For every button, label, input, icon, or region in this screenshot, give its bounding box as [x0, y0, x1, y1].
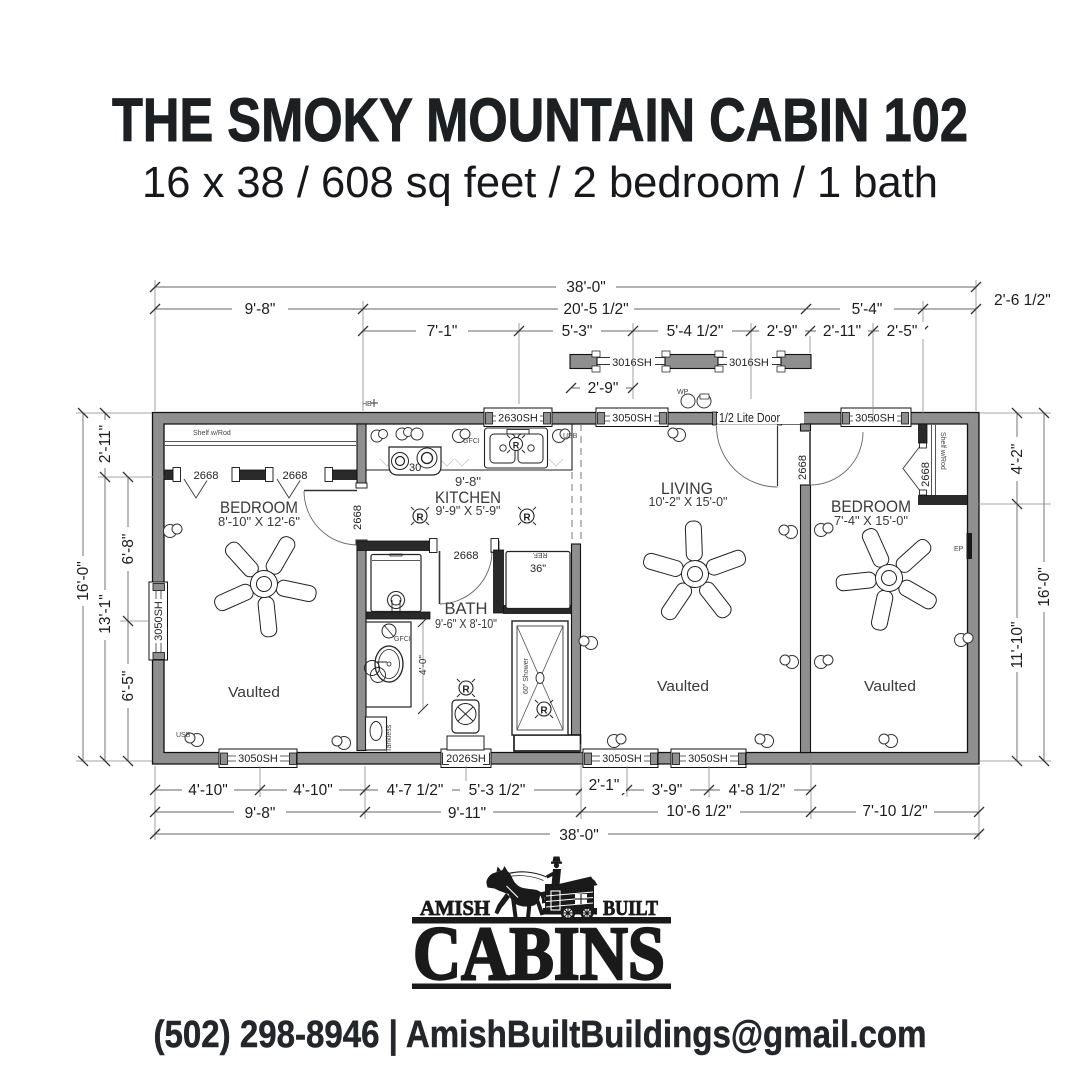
svg-text:CABINS: CABINS [413, 912, 665, 996]
svg-text:7'-10 1/2": 7'-10 1/2" [862, 803, 927, 820]
svg-text:38'-0": 38'-0" [559, 827, 598, 844]
svg-text:1/2 Lite Door: 1/2 Lite Door [719, 411, 780, 425]
svg-text:4'-10": 4'-10" [293, 782, 332, 799]
svg-text:30: 30 [409, 462, 421, 474]
svg-text:2'-9": 2'-9" [767, 323, 798, 340]
svg-text:8'-10" X 12'-6": 8'-10" X 12'-6" [218, 514, 300, 529]
svg-text:THE SMOKY MOUNTAIN CABIN 102: THE SMOKY MOUNTAIN CABIN 102 [112, 86, 968, 154]
svg-text:2668: 2668 [920, 462, 932, 487]
svg-text:2630SH: 2630SH [498, 413, 538, 425]
svg-text:38'-0": 38'-0" [566, 279, 605, 296]
svg-text:R: R [523, 513, 531, 524]
svg-text:10'-6 1/2": 10'-6 1/2" [666, 803, 731, 820]
svg-text:2668: 2668 [797, 455, 809, 480]
svg-text:2'-1": 2'-1" [589, 777, 620, 794]
svg-text:36": 36" [530, 563, 546, 575]
svg-text:9'-8": 9'-8" [245, 805, 276, 822]
svg-text:7'-4" X 15'-0": 7'-4" X 15'-0" [834, 513, 908, 528]
svg-text:Vaulted: Vaulted [657, 678, 709, 695]
svg-text:REF.: REF. [532, 551, 547, 558]
svg-text:(502) 298-8946 | AmishBuiltBui: (502) 298-8946 | AmishBuiltBuildings@gma… [154, 1014, 927, 1056]
svg-text:GFCI: GFCI [463, 438, 480, 445]
svg-text:5'-4": 5'-4" [852, 301, 883, 318]
svg-text:60" Shower: 60" Shower [523, 657, 530, 694]
svg-text:2668: 2668 [352, 505, 364, 530]
svg-text:3050SH: 3050SH [855, 413, 895, 425]
svg-text:3050SH: 3050SH [153, 601, 165, 641]
svg-text:3050SH: 3050SH [612, 413, 652, 425]
svg-text:9'-9" X 5'-9": 9'-9" X 5'-9" [436, 503, 501, 518]
svg-text:R: R [513, 441, 520, 451]
svg-text:4'-2": 4'-2" [1009, 444, 1026, 475]
svg-text:R: R [540, 706, 548, 717]
svg-text:2668: 2668 [454, 550, 479, 562]
svg-text:9'-8": 9'-8" [455, 474, 481, 489]
svg-text:9'-6" X 8'-10": 9'-6" X 8'-10" [435, 616, 497, 631]
svg-text:5'-4 1/2": 5'-4 1/2" [667, 323, 724, 340]
svg-text:6'-8": 6'-8" [120, 534, 137, 565]
svg-text:EP: EP [954, 546, 964, 553]
svg-text:2'-11": 2'-11" [823, 323, 861, 340]
svg-text:2'-5": 2'-5" [887, 323, 918, 340]
svg-text:3016SH: 3016SH [612, 357, 652, 369]
svg-text:16'-0": 16'-0" [75, 561, 92, 600]
svg-text:4'-8 1/2": 4'-8 1/2" [729, 782, 786, 799]
svg-text:2'-6 1/2": 2'-6 1/2" [994, 292, 1051, 309]
svg-text:Vaulted: Vaulted [228, 684, 280, 701]
svg-text:3050SH: 3050SH [602, 753, 642, 765]
svg-text:4'-0": 4'-0" [418, 655, 429, 675]
svg-text:Shelf w/Rod: Shelf w/Rod [939, 432, 946, 470]
svg-text:16 x 38 / 608 sq feet / 2 bedr: 16 x 38 / 608 sq feet / 2 bedroom / 1 ba… [142, 158, 938, 207]
svg-text:5'-3": 5'-3" [562, 323, 593, 340]
svg-text:USB: USB [176, 732, 191, 739]
svg-text:Vaulted: Vaulted [864, 678, 916, 695]
svg-text:4'-10": 4'-10" [188, 782, 227, 799]
svg-text:9'-8": 9'-8" [245, 301, 276, 318]
svg-text:11'-10": 11'-10" [1009, 622, 1026, 669]
svg-text:2668: 2668 [283, 470, 308, 482]
svg-text:3016SH: 3016SH [729, 357, 769, 369]
svg-text:3050SH: 3050SH [688, 753, 728, 765]
svg-text:GFCI: GFCI [394, 636, 411, 643]
svg-text:9'-11": 9'-11" [448, 805, 486, 822]
svg-text:6'-5": 6'-5" [120, 671, 137, 702]
svg-text:R: R [462, 685, 470, 696]
svg-text:16'-0": 16'-0" [1036, 567, 1053, 606]
svg-text:Tankless: Tankless [386, 724, 393, 752]
svg-text:20'-5 1/2": 20'-5 1/2" [563, 301, 628, 318]
svg-text:7'-1": 7'-1" [427, 323, 458, 340]
svg-text:USB: USB [563, 433, 578, 440]
svg-text:2026SH: 2026SH [446, 753, 486, 765]
svg-text:HB: HB [362, 401, 372, 408]
svg-text:3050SH: 3050SH [238, 753, 278, 765]
svg-text:3'-9": 3'-9" [652, 782, 683, 799]
svg-text:R: R [416, 513, 424, 524]
svg-text:5'-3 1/2": 5'-3 1/2" [469, 782, 526, 799]
svg-text:2'-9": 2'-9" [588, 380, 619, 397]
svg-text:13'-1": 13'-1" [97, 594, 114, 633]
svg-text:2668: 2668 [194, 470, 219, 482]
svg-text:2'-11": 2'-11" [97, 425, 114, 463]
svg-text:4'-7 1/2": 4'-7 1/2" [387, 782, 444, 799]
svg-text:10'-2" X 15'-0": 10'-2" X 15'-0" [649, 494, 728, 509]
svg-text:Shelf w/Rod: Shelf w/Rod [193, 430, 231, 437]
